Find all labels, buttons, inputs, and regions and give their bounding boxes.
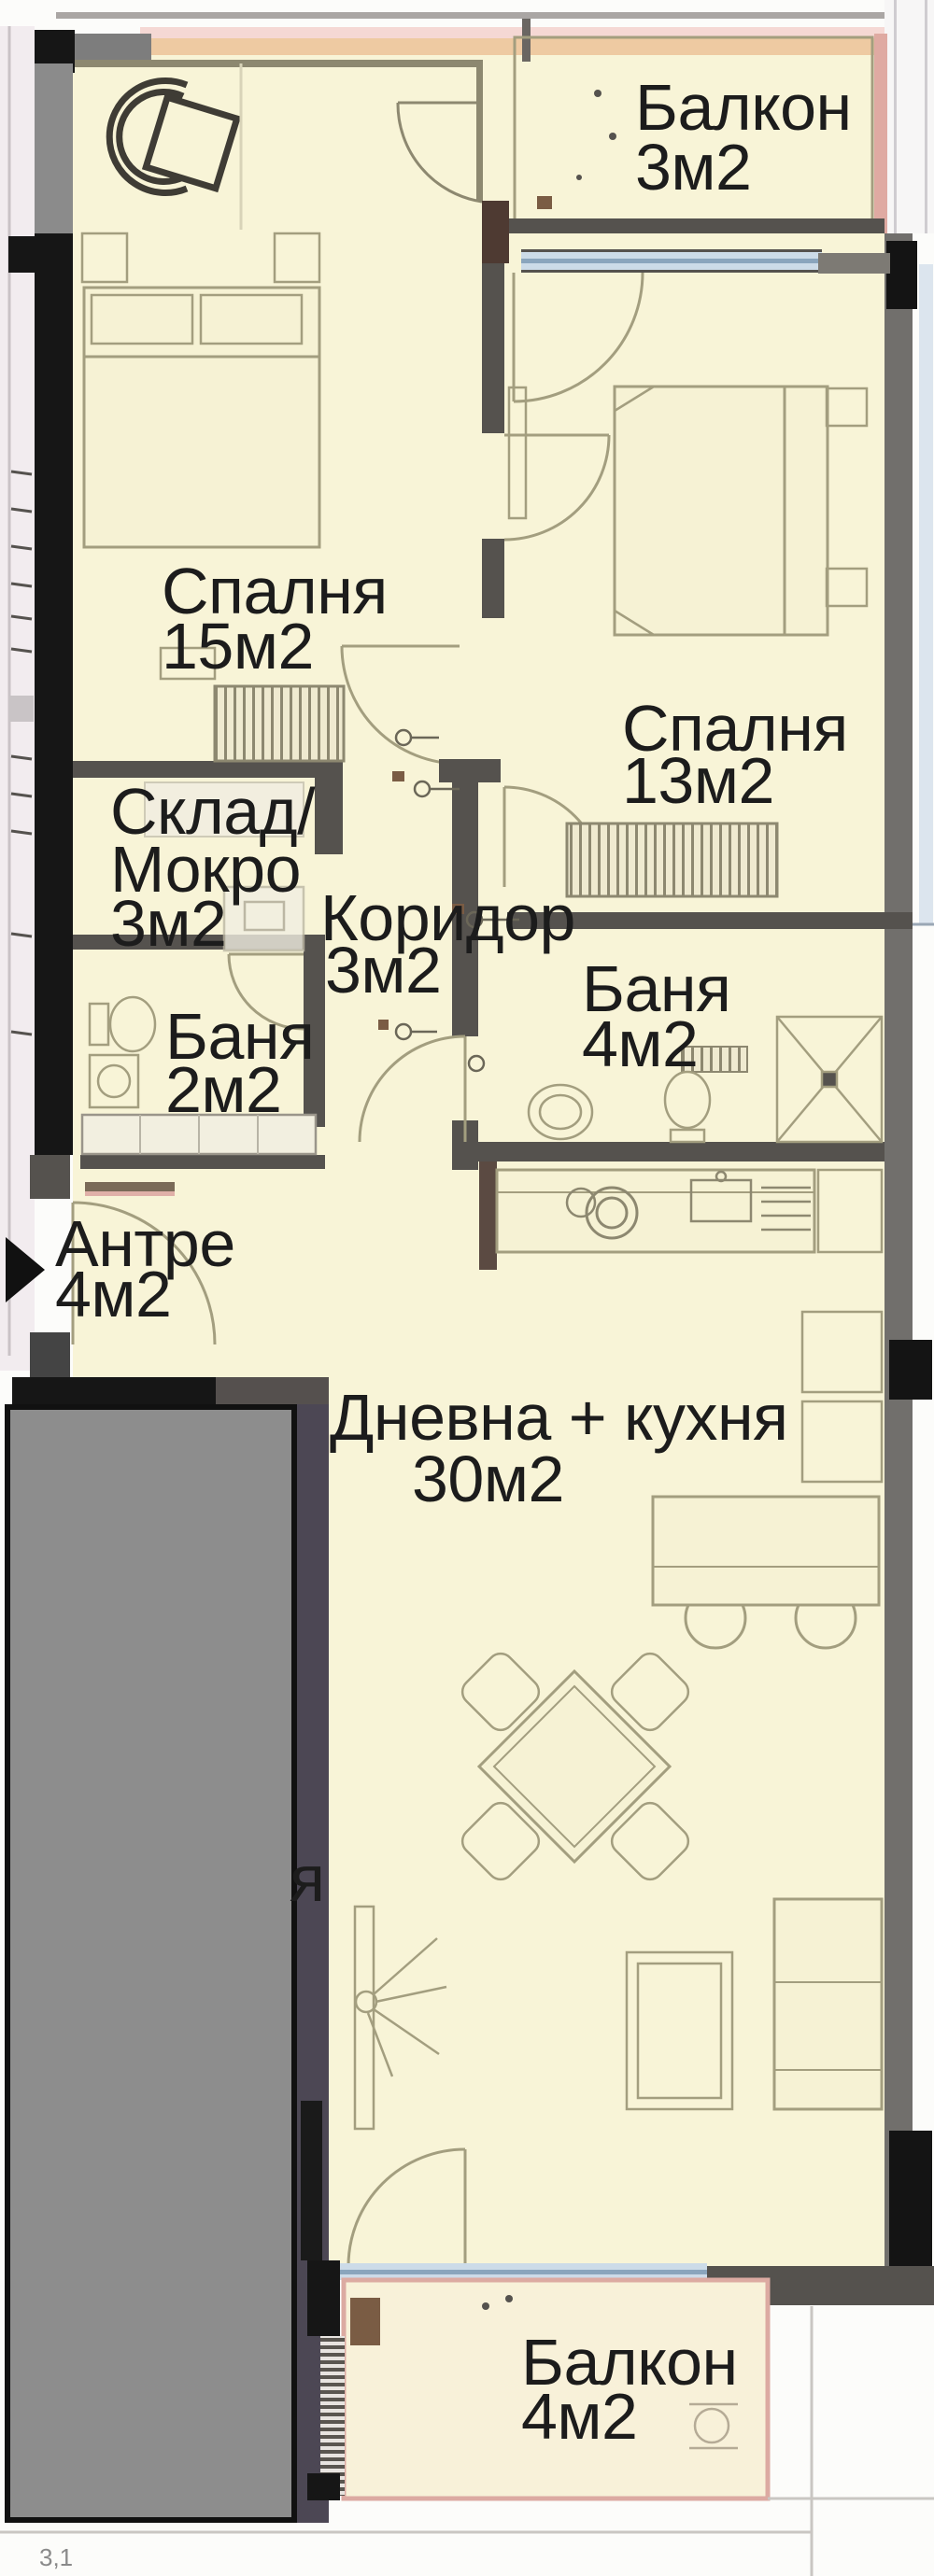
svg-text:3,1: 3,1 [39,2543,73,2571]
svg-text:13м2: 13м2 [622,744,774,817]
svg-text:3м2: 3м2 [110,887,227,960]
svg-text:4м2: 4м2 [55,1258,172,1330]
svg-text:4м2: 4м2 [582,1007,699,1080]
svg-text:4м2: 4м2 [521,2380,638,2453]
svg-text:я: я [290,1842,324,1915]
svg-text:30м2: 30м2 [412,1443,564,1515]
svg-text:15м2: 15м2 [162,610,314,683]
svg-text:2м2: 2м2 [165,1053,282,1126]
svg-text:3м2: 3м2 [635,131,752,204]
svg-text:3м2: 3м2 [325,934,442,1006]
